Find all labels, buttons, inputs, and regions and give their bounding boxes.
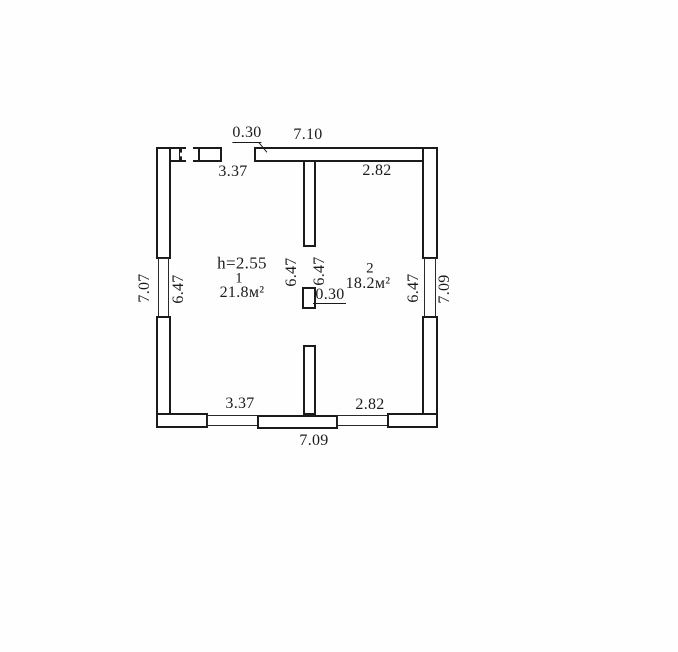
underline-partition-thickness	[313, 303, 346, 304]
dim-room1-top: 3.37	[218, 164, 247, 180]
wall-bottom-left-corner	[156, 413, 208, 428]
floor-plan-scan: 0.30 7.10 3.37 2.82 7.07 6.47 6.47 6.47 …	[0, 0, 678, 652]
dim-room2-bottom: 2.82	[355, 397, 384, 413]
wall-bottom-center	[257, 415, 338, 429]
room1-area: 21.8м²	[220, 285, 265, 301]
window-left	[158, 258, 169, 317]
dim-room1-bottom: 3.37	[225, 396, 254, 412]
wall-entry-pier	[198, 147, 222, 162]
wall-right-lower	[422, 316, 438, 416]
wall-top-exterior	[254, 147, 438, 162]
wall-partition-stub	[302, 287, 316, 309]
dim-partition-thickness: 0.30	[315, 287, 344, 303]
wall-left-upper	[156, 147, 171, 259]
wall-bottom-right-corner	[387, 413, 438, 428]
dim-right-interior: 6.47	[406, 273, 422, 302]
dim-room2-top: 2.82	[362, 163, 391, 179]
dim-room2-height: 6.47	[312, 256, 328, 285]
window-right	[424, 258, 436, 317]
wall-right-upper	[422, 147, 438, 259]
dim-top-wall-thickness: 0.30	[232, 125, 261, 143]
dim-top-exterior: 7.10	[293, 127, 322, 143]
room2-area: 18.2м²	[346, 276, 391, 292]
window-bottom-right	[337, 415, 388, 426]
dim-left-interior: 6.47	[171, 274, 187, 303]
window-bottom-left	[207, 415, 258, 426]
wall-left-lower	[156, 316, 171, 416]
wall-partition-lower	[303, 345, 316, 415]
dim-room1-height: 6.47	[284, 257, 300, 286]
dim-right-exterior: 7.09	[437, 274, 453, 303]
doorway-dashed-opening	[180, 147, 199, 162]
ceiling-height-note: h=2.55	[217, 255, 267, 272]
dim-left-exterior: 7.07	[137, 273, 153, 302]
dim-bottom-exterior: 7.09	[299, 433, 328, 449]
wall-partition-upper	[303, 160, 316, 247]
